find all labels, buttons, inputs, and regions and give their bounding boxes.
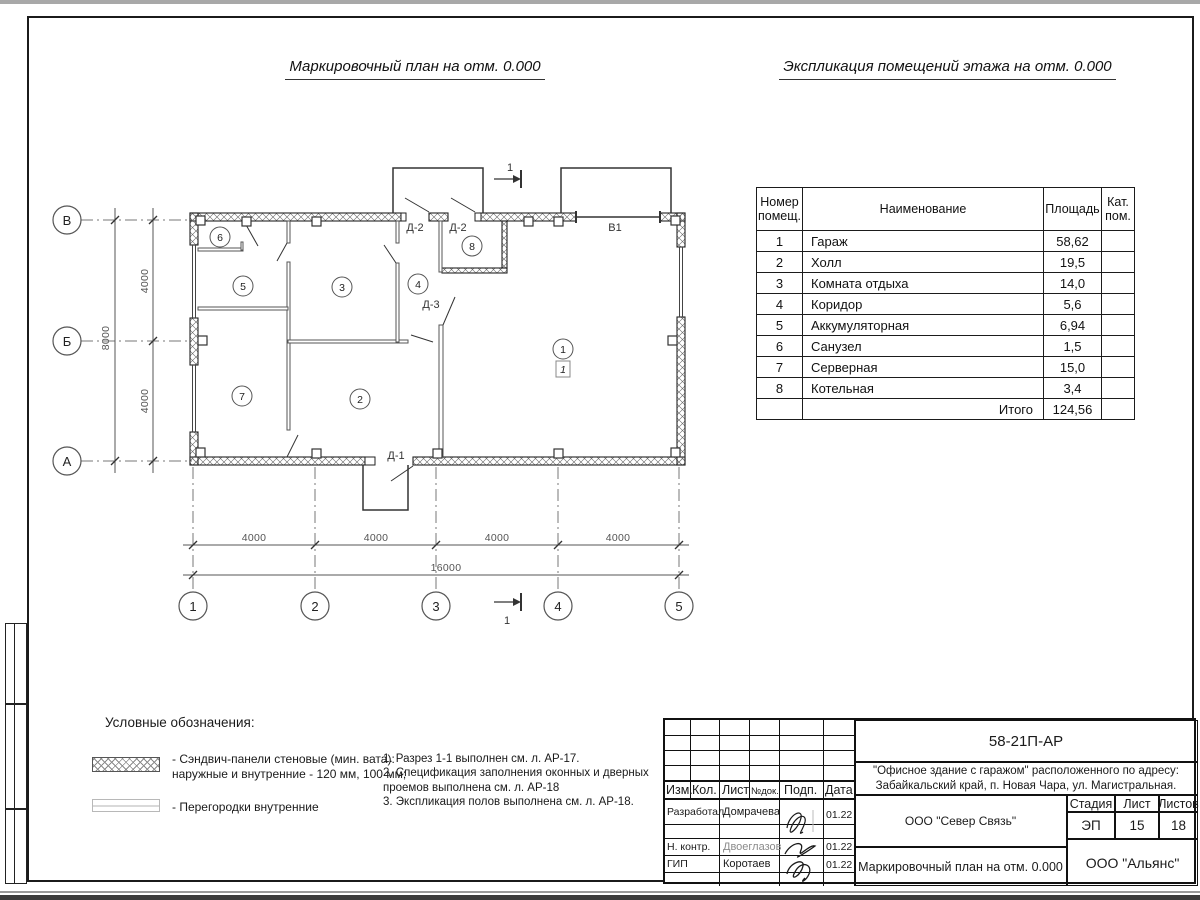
room-cat bbox=[1102, 336, 1135, 357]
tb-name: Двоеглазов bbox=[723, 841, 781, 853]
tb-sheets-value: 18 bbox=[1159, 812, 1198, 839]
axis-label: 1 bbox=[189, 599, 196, 614]
room-name: Комната отдыха bbox=[803, 273, 1044, 294]
room-num: 3 bbox=[757, 273, 803, 294]
svg-text:1: 1 bbox=[504, 615, 510, 627]
table-total-row: Итого 124,56 bbox=[757, 399, 1135, 420]
note-line: 3. Экспликация полов выполнена см. л. АР… bbox=[383, 795, 651, 809]
door-label: Д-2 bbox=[449, 222, 466, 234]
col-header-num: Номер помещ. bbox=[757, 188, 803, 231]
total-cat bbox=[1102, 399, 1135, 420]
tb-sheet-value: 15 bbox=[1115, 812, 1159, 839]
tb-sheet-title: Маркировочный план на отм. 0.000 bbox=[854, 847, 1067, 886]
room-area: 6,94 bbox=[1044, 315, 1102, 336]
room-area: 1,5 bbox=[1044, 336, 1102, 357]
windows bbox=[193, 245, 683, 432]
col-header-area: Площадь bbox=[1044, 188, 1102, 231]
col-header-name: Наименование bbox=[803, 188, 1044, 231]
drawing-sheet: { "titles": { "plan_title": "Маркировочн… bbox=[0, 0, 1200, 900]
axis-label: В bbox=[63, 213, 72, 228]
table-header-row: Номер помещ. Наименование Площадь Кат. п… bbox=[757, 188, 1135, 231]
tb-company2: ООО "Альянс" bbox=[1067, 839, 1198, 886]
room-number: 1 bbox=[560, 344, 566, 356]
door-label: Д-3 bbox=[422, 299, 439, 311]
legend-title: Условные обозначения: bbox=[105, 715, 255, 730]
total-empty bbox=[757, 399, 803, 420]
room-name: Аккумуляторная bbox=[803, 315, 1044, 336]
notes-block: 1. Разрез 1-1 выполнен см. л. АР-17. 2. … bbox=[383, 752, 651, 810]
total-label: Итого bbox=[803, 399, 1044, 420]
svg-text:1: 1 bbox=[507, 162, 513, 174]
axis-label: 5 bbox=[675, 599, 682, 614]
table-row: 3Комната отдыха14,0 bbox=[757, 273, 1135, 294]
room-number: 4 bbox=[415, 279, 421, 291]
tb-col-izm: Изм. bbox=[666, 783, 693, 797]
table-row: 7Серверная15,0 bbox=[757, 357, 1135, 378]
table-row: 5Аккумуляторная6,94 bbox=[757, 315, 1135, 336]
legend-item-partition: - Перегородки внутренние bbox=[172, 800, 319, 814]
legend-swatch-partition bbox=[92, 799, 160, 812]
room-circles bbox=[210, 227, 573, 409]
room-area: 19,5 bbox=[1044, 252, 1102, 273]
room-cat bbox=[1102, 273, 1135, 294]
dim-label: 4000 bbox=[485, 532, 510, 544]
tb-company: ООО "Север Связь" bbox=[854, 795, 1067, 847]
axis-label: 4 bbox=[554, 599, 561, 614]
table-row: 8Котельная3,4 bbox=[757, 378, 1135, 399]
door-label: Д-2 bbox=[406, 222, 423, 234]
signature-strokes bbox=[779, 798, 823, 886]
room-name: Серверная bbox=[803, 357, 1044, 378]
room-cat bbox=[1102, 315, 1135, 336]
title-block: Изм. Кол. Лист №док. Подп. Дата Разработ… bbox=[663, 718, 1196, 884]
exterior-walls bbox=[190, 213, 685, 465]
total-area: 124,56 bbox=[1044, 399, 1102, 420]
room-cat bbox=[1102, 231, 1135, 252]
axis-label: 3 bbox=[432, 599, 439, 614]
tb-object-address: "Офисное здание с гаражом" расположенног… bbox=[854, 762, 1198, 795]
tb-stage-label: Стадия bbox=[1067, 795, 1115, 812]
axis-label: А bbox=[63, 454, 72, 469]
room-cat bbox=[1102, 252, 1135, 273]
room-name: Гараж bbox=[803, 231, 1044, 252]
legend-swatch-sandwich-panel bbox=[92, 757, 160, 772]
tb-col-list: Лист bbox=[722, 783, 749, 797]
section-mark-bottom: 1 bbox=[494, 593, 521, 627]
room-num: 5 bbox=[757, 315, 803, 336]
room-name: Котельная bbox=[803, 378, 1044, 399]
room-number: 2 bbox=[357, 394, 363, 406]
note-line: 1. Разрез 1-1 выполнен см. л. АР-17. bbox=[383, 752, 651, 766]
tb-date: 01.22 bbox=[826, 841, 852, 853]
table-row: 6Санузел1,5 bbox=[757, 336, 1135, 357]
tb-doc-number: 58-21П-АР bbox=[854, 720, 1198, 762]
col-header-cat: Кат. пом. bbox=[1102, 188, 1135, 231]
dim-label: 4000 bbox=[242, 532, 267, 544]
dim-total-label: 16000 bbox=[431, 562, 462, 574]
room-name: Холл bbox=[803, 252, 1044, 273]
dim-total-label: 8000 bbox=[100, 326, 112, 351]
dim-label: 4000 bbox=[139, 269, 151, 294]
room-area: 3,4 bbox=[1044, 378, 1102, 399]
tb-sheet-label: Лист bbox=[1115, 795, 1159, 812]
tb-stage-value: ЭП bbox=[1067, 812, 1115, 839]
room-num: 6 bbox=[757, 336, 803, 357]
dim-label: 4000 bbox=[606, 532, 631, 544]
room-num: 1 bbox=[757, 231, 803, 252]
tb-date: 01.22 bbox=[826, 859, 852, 871]
tb-col-ndok: №док. bbox=[751, 786, 779, 797]
section-mark-top: 1 bbox=[494, 162, 521, 188]
explication-table: Номер помещ. Наименование Площадь Кат. п… bbox=[756, 187, 1135, 420]
dim-label: 4000 bbox=[364, 532, 389, 544]
dimension-lines bbox=[115, 208, 689, 575]
room-number: 7 bbox=[239, 391, 245, 403]
room-num: 8 bbox=[757, 378, 803, 399]
table-row: 1Гараж58,62 bbox=[757, 231, 1135, 252]
tb-date: 01.22 bbox=[826, 809, 852, 821]
room-number: 3 bbox=[339, 282, 345, 294]
table-row: 2Холл19,5 bbox=[757, 252, 1135, 273]
room-area: 58,62 bbox=[1044, 231, 1102, 252]
room-area: 15,0 bbox=[1044, 357, 1102, 378]
room-cat bbox=[1102, 378, 1135, 399]
partitions bbox=[198, 221, 443, 457]
axis-label: 2 bbox=[311, 599, 318, 614]
room-number: 5 bbox=[240, 281, 246, 293]
room-number: 6 bbox=[217, 232, 223, 244]
room-cat bbox=[1102, 357, 1135, 378]
tb-role: Н. контр. bbox=[667, 841, 710, 853]
axis-label: Б bbox=[63, 334, 72, 349]
room-area: 5,6 bbox=[1044, 294, 1102, 315]
tb-role: ГИП bbox=[667, 858, 688, 870]
note-line: 2. Спецификация заполнения оконных и две… bbox=[383, 766, 651, 795]
room-num: 4 bbox=[757, 294, 803, 315]
tb-col-data: Дата bbox=[825, 783, 853, 797]
tb-col-kol: Кол. bbox=[692, 783, 717, 797]
room-num: 7 bbox=[757, 357, 803, 378]
room-area: 14,0 bbox=[1044, 273, 1102, 294]
tb-sheets-label: Листов bbox=[1159, 795, 1198, 812]
room-name: Санузел bbox=[803, 336, 1044, 357]
door-label: Д-1 bbox=[387, 450, 404, 462]
tb-role: Разработал bbox=[667, 806, 724, 818]
floor-mark: 1 bbox=[560, 364, 566, 376]
tb-col-podp: Подп. bbox=[784, 783, 817, 797]
table-row: 4Коридор5,6 bbox=[757, 294, 1135, 315]
gate-label: В1 bbox=[608, 222, 621, 234]
tb-name: Коротаев bbox=[723, 858, 771, 870]
room-name: Коридор bbox=[803, 294, 1044, 315]
tb-name: Домрачева bbox=[723, 806, 780, 818]
room-cat bbox=[1102, 294, 1135, 315]
dim-label: 4000 bbox=[139, 389, 151, 414]
room-number: 8 bbox=[469, 241, 475, 253]
column-marks bbox=[196, 216, 680, 458]
room-num: 2 bbox=[757, 252, 803, 273]
